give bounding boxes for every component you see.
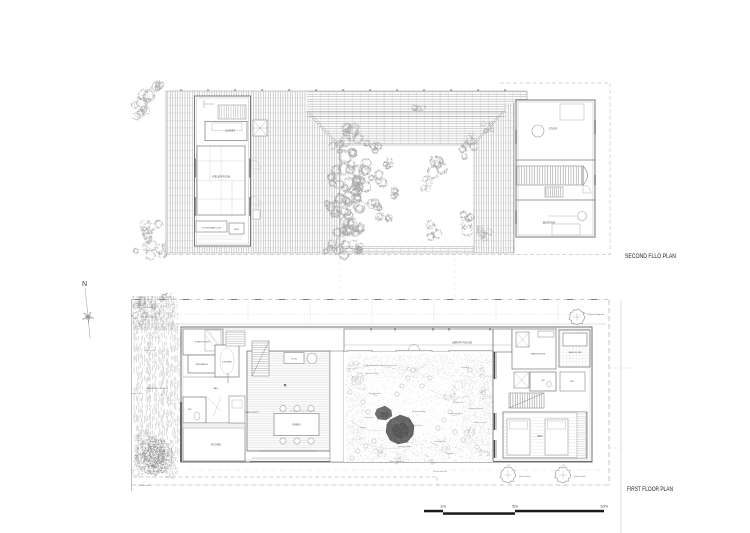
svg-text:CLOSET: CLOSET xyxy=(225,130,235,133)
svg-text:MAIN OFFICE: MAIN OFFICE xyxy=(246,411,260,414)
svg-text:WC: WC xyxy=(188,409,192,411)
svg-text:TOKONOMA ALCOVE: TOKONOMA ALCOVE xyxy=(202,227,222,230)
svg-text:Serrata-style wall: Serrata-style wall xyxy=(433,470,447,473)
svg-text:SECOND FLLO PLAN: SECOND FLLO PLAN xyxy=(625,253,676,260)
svg-text:Japanese maple: Japanese maple xyxy=(397,446,410,448)
svg-text:HALL: HALL xyxy=(213,387,219,390)
svg-text:DINING: DINING xyxy=(292,425,300,427)
svg-text:Stone lantern: Stone lantern xyxy=(131,392,142,395)
svg-text:N: N xyxy=(82,281,87,288)
svg-text:Ostrich fern: Ostrich fern xyxy=(413,424,422,427)
svg-text:Semi-shade: Semi-shade xyxy=(145,350,155,352)
svg-text:SOFA: SOFA xyxy=(291,358,297,361)
svg-text:Stone wash basin: Stone wash basin xyxy=(469,407,483,410)
svg-text:Columnar cherry: Columnar cherry xyxy=(449,413,462,415)
svg-text:Hypericum: Hypericum xyxy=(365,417,374,419)
svg-text:GUEST ROOM: GUEST ROOM xyxy=(195,342,210,344)
svg-text:STORAGE: STORAGE xyxy=(222,361,232,364)
svg-text:GARDEN OF NORTH: GARDEN OF NORTH xyxy=(146,387,168,390)
svg-text:Kuro-Moji: Kuro-Moji xyxy=(461,367,469,369)
svg-text:Moss-covered soil: Moss-covered soil xyxy=(390,461,405,463)
svg-text:STUDY: STUDY xyxy=(549,127,558,131)
svg-text:Natsutsubaki: Natsutsubaki xyxy=(574,475,586,478)
svg-text:Hypericum: Hypericum xyxy=(446,453,455,455)
svg-text:10m: 10m xyxy=(600,504,608,509)
svg-text:Moss garden: Moss garden xyxy=(143,306,154,309)
svg-text:Rock-up moss: Rock-up moss xyxy=(474,422,486,424)
svg-text:Mountain Maple: Mountain Maple xyxy=(366,372,379,375)
svg-text:1m: 1m xyxy=(440,504,446,509)
svg-text:KITCHEN: KITCHEN xyxy=(211,445,221,447)
svg-text:BATH ROOM: BATH ROOM xyxy=(569,351,582,354)
svg-text:ENTRANCE: ENTRANCE xyxy=(196,363,209,366)
svg-text:Natsutsubaki: Natsutsubaki xyxy=(519,475,531,478)
svg-text:ATELIER ROOM: ATELIER ROOM xyxy=(212,176,230,179)
svg-text:BED: BED xyxy=(538,436,543,438)
svg-text:5m: 5m xyxy=(512,504,518,509)
svg-text:Evergreen azalea: Evergreen azalea xyxy=(412,411,426,413)
svg-text:Tamaryu: Tamaryu xyxy=(360,427,367,429)
svg-text:Leatherleaf fern: Leatherleaf fern xyxy=(434,440,447,443)
svg-text:+5.25: +5.25 xyxy=(561,465,566,467)
svg-text:+5.25: +5.25 xyxy=(506,465,511,467)
svg-text:As aruki-en a big roof covers: As aruki-en a big roof covers up xyxy=(290,410,315,413)
svg-text:FIRST FLOOR PLAN: FIRST FLOOR PLAN xyxy=(627,486,673,493)
svg-text:Mound bamboo: Mound bamboo xyxy=(369,393,382,395)
svg-text:Tall Stewartia: Tall Stewartia xyxy=(453,401,464,404)
svg-text:Existing hedge row: Existing hedge row xyxy=(142,316,159,319)
svg-text:WC: WC xyxy=(541,380,545,382)
svg-text:WASH ROOM: WASH ROOM xyxy=(531,353,545,356)
svg-text:DESK: DESK xyxy=(234,229,240,231)
svg-text:Cornus kousa: Cornus kousa xyxy=(138,484,151,487)
svg-text:WIC: WIC xyxy=(570,381,574,383)
svg-text:LIBRARY FACADE: LIBRARY FACADE xyxy=(452,342,473,345)
svg-text:Willow-leaved bush clover / bi: Willow-leaved bush clover / big leaf inn… xyxy=(365,365,398,367)
svg-text:Kobushi Magnolia: Kobushi Magnolia xyxy=(588,314,605,316)
